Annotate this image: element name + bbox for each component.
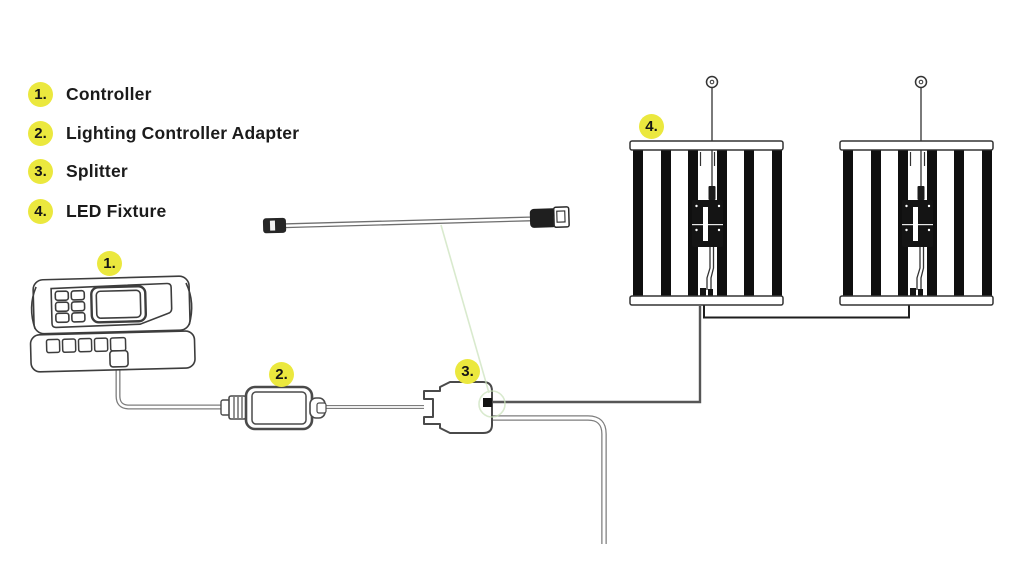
extension-cable-illustration bbox=[263, 207, 569, 236]
cable-splitter-lower-output bbox=[490, 418, 604, 544]
hanger-hook-icon bbox=[916, 77, 927, 88]
controller-plug bbox=[110, 351, 128, 367]
wiring-diagram-page: 1. Controller 2. Lighting Controller Ada… bbox=[0, 0, 1024, 571]
splitter-output-connector bbox=[483, 398, 492, 407]
controller-illustration bbox=[29, 276, 195, 372]
adapter-output-clip bbox=[310, 398, 326, 418]
callout-badge-splitter: 3. bbox=[455, 359, 480, 384]
driver-box bbox=[692, 200, 723, 247]
led-fixture-1-illustration bbox=[630, 77, 783, 306]
cable-connector-left bbox=[263, 218, 286, 234]
callout-badge-led-fixture: 4. bbox=[639, 114, 664, 139]
callout-badge-controller: 1. bbox=[97, 251, 122, 276]
callout-badge-adapter: 2. bbox=[269, 362, 294, 387]
led-fixture-2-illustration bbox=[840, 77, 993, 306]
adapter-illustration bbox=[221, 387, 326, 429]
hanger-hook-icon bbox=[707, 77, 718, 88]
cable-controller-to-adapter bbox=[118, 366, 224, 407]
wiring-diagram-illustration bbox=[0, 0, 1024, 571]
cable-connector-right bbox=[530, 207, 570, 228]
splitter-illustration bbox=[424, 382, 492, 433]
wire-fixture1-to-fixture2 bbox=[704, 305, 909, 318]
wire-splitter-to-fixture1 bbox=[492, 306, 700, 402]
driver-box bbox=[902, 200, 933, 247]
